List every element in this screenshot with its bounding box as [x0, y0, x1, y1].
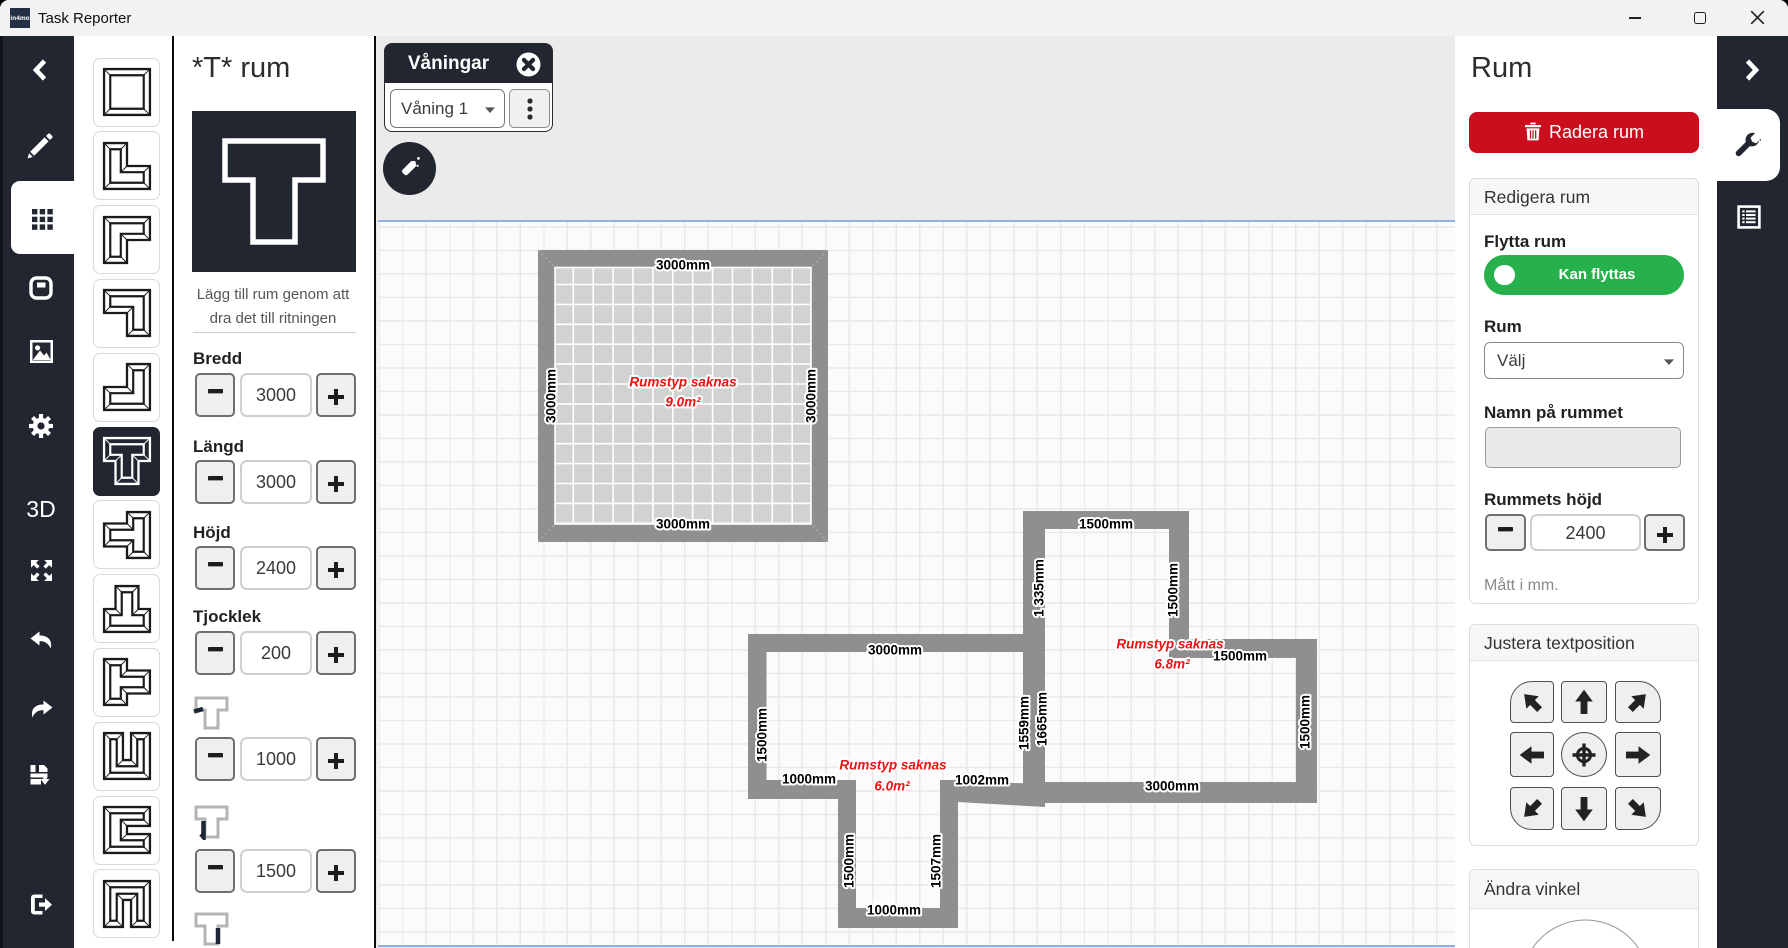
svg-text:1500mm: 1500mm	[842, 834, 857, 888]
svg-text:1 335mm: 1 335mm	[1032, 559, 1047, 617]
svg-text:3000mm: 3000mm	[656, 517, 710, 532]
svg-text:1500mm: 1500mm	[755, 708, 770, 762]
svg-text:3000mm: 3000mm	[656, 258, 710, 273]
svg-text:Rumstyp saknas: Rumstyp saknas	[839, 758, 947, 773]
svg-text:1000mm: 1000mm	[782, 772, 836, 787]
svg-text:Rumstyp saknas: Rumstyp saknas	[629, 375, 737, 390]
svg-text:6.0m²: 6.0m²	[874, 779, 910, 794]
svg-text:9.0m²: 9.0m²	[665, 395, 701, 410]
svg-text:1000mm: 1000mm	[867, 903, 921, 918]
svg-text:1002mm: 1002mm	[955, 773, 1009, 788]
svg-text:1500mm: 1500mm	[1298, 695, 1313, 749]
svg-text:1500mm: 1500mm	[1079, 517, 1133, 532]
svg-text:6.8m²: 6.8m²	[1154, 657, 1190, 672]
svg-text:3000mm: 3000mm	[804, 369, 819, 423]
svg-text:1500mm: 1500mm	[1166, 563, 1181, 617]
svg-text:1559mm: 1559mm	[1017, 696, 1032, 750]
svg-text:3000mm: 3000mm	[1145, 779, 1199, 794]
svg-text:3000mm: 3000mm	[544, 369, 559, 423]
svg-text:Rumstyp saknas: Rumstyp saknas	[1116, 637, 1224, 652]
svg-text:3000mm: 3000mm	[868, 643, 922, 658]
svg-text:1665mm: 1665mm	[1035, 692, 1050, 746]
svg-text:1507mm: 1507mm	[929, 834, 944, 888]
